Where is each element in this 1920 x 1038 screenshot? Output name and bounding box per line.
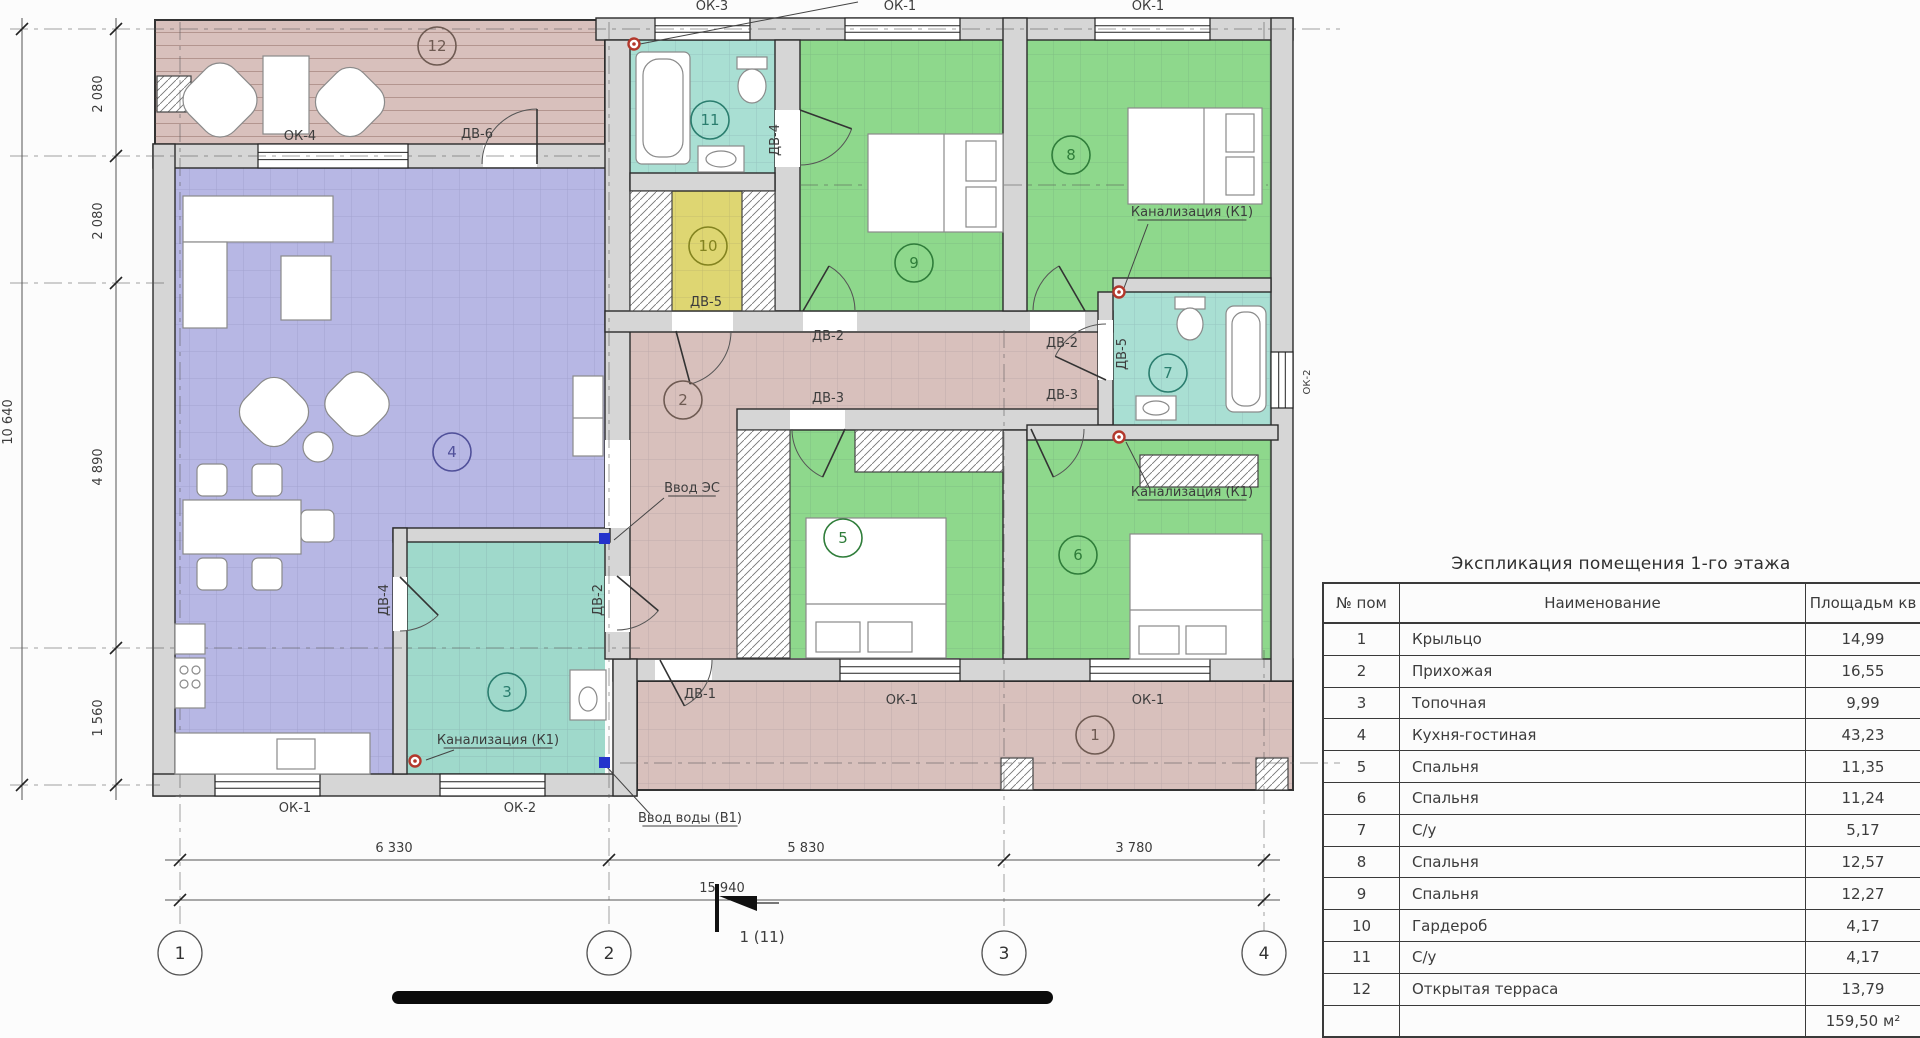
svg-text:12: 12 xyxy=(427,37,446,55)
svg-text:5: 5 xyxy=(838,529,848,547)
cell-room-area: 14,99 xyxy=(1806,624,1920,655)
svg-text:Ввод ЭС: Ввод ЭС xyxy=(664,481,720,496)
cell-room-area: 16,55 xyxy=(1806,656,1920,687)
svg-text:Канализация (К1): Канализация (К1) xyxy=(1131,485,1253,500)
svg-text:11: 11 xyxy=(700,111,719,129)
page: 123456789101112ОК-3ОК-1ОК-1ОК-4ДВ-6ДВ-4К… xyxy=(0,0,1920,1020)
svg-text:Канализация (К1): Канализация (К1) xyxy=(1131,205,1253,220)
svg-text:9: 9 xyxy=(909,254,919,272)
svg-text:ДВ-4: ДВ-4 xyxy=(377,584,392,616)
svg-text:3: 3 xyxy=(999,944,1010,964)
svg-text:ОК-2: ОК-2 xyxy=(504,801,536,816)
cell-room-name: Спальня xyxy=(1400,783,1806,814)
svg-text:2: 2 xyxy=(678,391,688,409)
svg-text:ДВ-1: ДВ-1 xyxy=(684,687,716,702)
cell-room-number: 9 xyxy=(1324,878,1400,909)
explication-row: 11С/у4,17 xyxy=(1324,942,1920,974)
cell-room-area: 12,57 xyxy=(1806,847,1920,878)
cell-room-number: 2 xyxy=(1324,656,1400,687)
cell-room-area: 11,24 xyxy=(1806,783,1920,814)
cell-total-area: 159,50 м² xyxy=(1806,1006,1920,1037)
svg-text:ДВ-6: ДВ-6 xyxy=(461,127,493,142)
explication-total-row: 159,50 м² xyxy=(1324,1006,1920,1037)
explication-table: № пом Наименование Площадьм кв 1Крыльцо1… xyxy=(1322,582,1920,1038)
svg-text:ДВ-2: ДВ-2 xyxy=(812,329,844,344)
cell-room-area: 11,35 xyxy=(1806,751,1920,782)
explication-row: 7С/у5,17 xyxy=(1324,815,1920,847)
svg-text:ДВ-2: ДВ-2 xyxy=(1046,336,1078,351)
cell-room-number: 1 xyxy=(1324,624,1400,655)
svg-text:1 (11): 1 (11) xyxy=(739,928,784,946)
cell-empty xyxy=(1324,1006,1400,1037)
cell-room-name: Прихожая xyxy=(1400,656,1806,687)
explication-panel: Экспликация помещения 1-го этажа № пом Н… xyxy=(1322,554,1920,1038)
svg-text:7: 7 xyxy=(1163,364,1173,382)
svg-text:ДВ-3: ДВ-3 xyxy=(1046,388,1078,403)
explication-row: 3Топочная9,99 xyxy=(1324,688,1920,720)
cell-room-name: Гардероб xyxy=(1400,910,1806,941)
svg-text:3 780: 3 780 xyxy=(1115,841,1152,856)
svg-text:Канализация (К1): Канализация (К1) xyxy=(437,733,559,748)
explication-title: Экспликация помещения 1-го этажа xyxy=(1322,554,1920,582)
svg-text:6: 6 xyxy=(1073,546,1083,564)
cell-room-name: Топочная xyxy=(1400,688,1806,719)
cell-room-number: 8 xyxy=(1324,847,1400,878)
cell-room-number: 11 xyxy=(1324,942,1400,973)
cell-room-area: 5,17 xyxy=(1806,815,1920,846)
svg-text:ДВ-2: ДВ-2 xyxy=(591,584,606,616)
svg-text:ДВ-5: ДВ-5 xyxy=(690,295,722,310)
svg-text:ОК-1: ОК-1 xyxy=(1132,693,1164,708)
svg-text:ОК-1: ОК-1 xyxy=(1132,0,1164,14)
svg-text:1: 1 xyxy=(1090,726,1100,744)
cell-room-number: 4 xyxy=(1324,719,1400,750)
cell-room-name: Открытая терраса xyxy=(1400,974,1806,1005)
svg-text:10: 10 xyxy=(698,237,717,255)
svg-text:2: 2 xyxy=(604,944,615,964)
cell-room-number: 7 xyxy=(1324,815,1400,846)
header-room-number: № пом xyxy=(1324,584,1400,622)
cell-room-name: Крыльцо xyxy=(1400,624,1806,655)
svg-text:1 560: 1 560 xyxy=(91,699,106,736)
svg-text:15 940: 15 940 xyxy=(699,881,745,896)
cell-room-name: Кухня-гостиная xyxy=(1400,719,1806,750)
cell-room-area: 9,99 xyxy=(1806,688,1920,719)
cell-room-area: 13,79 xyxy=(1806,974,1920,1005)
svg-text:ОК-1: ОК-1 xyxy=(279,801,311,816)
svg-text:5 830: 5 830 xyxy=(787,841,824,856)
explication-row: 5Спальня11,35 xyxy=(1324,751,1920,783)
explication-row: 12Открытая терраса13,79 xyxy=(1324,974,1920,1006)
svg-text:4: 4 xyxy=(447,443,457,461)
cell-room-name: С/у xyxy=(1400,815,1806,846)
svg-text:10 640: 10 640 xyxy=(1,399,16,445)
cell-room-area: 12,27 xyxy=(1806,878,1920,909)
svg-text:2 080: 2 080 xyxy=(91,202,106,239)
explication-row: 8Спальня12,57 xyxy=(1324,847,1920,879)
cell-room-number: 12 xyxy=(1324,974,1400,1005)
explication-row: 6Спальня11,24 xyxy=(1324,783,1920,815)
cell-room-number: 10 xyxy=(1324,910,1400,941)
svg-text:1: 1 xyxy=(175,944,186,964)
cell-room-name: Спальня xyxy=(1400,878,1806,909)
svg-text:8: 8 xyxy=(1066,146,1076,164)
svg-text:2 080: 2 080 xyxy=(91,75,106,112)
cell-room-name: Спальня xyxy=(1400,751,1806,782)
explication-row: 4Кухня-гостиная43,23 xyxy=(1324,719,1920,751)
svg-text:ОК-1: ОК-1 xyxy=(886,693,918,708)
explication-row: 9Спальня12,27 xyxy=(1324,878,1920,910)
svg-text:4 890: 4 890 xyxy=(91,448,106,485)
svg-text:ДВ-5: ДВ-5 xyxy=(1115,338,1130,370)
cell-room-area: 4,17 xyxy=(1806,942,1920,973)
header-room-name: Наименование xyxy=(1400,584,1806,622)
svg-text:6 330: 6 330 xyxy=(375,841,412,856)
explication-header-row: № пом Наименование Площадьм кв xyxy=(1324,584,1920,624)
svg-text:Ввод воды (В1): Ввод воды (В1) xyxy=(638,811,742,826)
svg-text:4: 4 xyxy=(1259,944,1270,964)
explication-rows: 1Крыльцо14,992Прихожая16,553Топочная9,99… xyxy=(1324,624,1920,1036)
explication-row: 2Прихожая16,55 xyxy=(1324,656,1920,688)
explication-row: 1Крыльцо14,99 xyxy=(1324,624,1920,656)
cell-room-name: С/у xyxy=(1400,942,1806,973)
svg-text:ОК-4: ОК-4 xyxy=(284,129,316,144)
svg-text:ОК-3: ОК-3 xyxy=(696,0,728,14)
explication-row: 10Гардероб4,17 xyxy=(1324,910,1920,942)
video-scrubber[interactable] xyxy=(392,991,1053,1004)
cell-room-name: Спальня xyxy=(1400,847,1806,878)
cell-room-number: 3 xyxy=(1324,688,1400,719)
svg-text:ОК-1: ОК-1 xyxy=(884,0,916,14)
cell-empty xyxy=(1400,1006,1806,1037)
cell-room-number: 5 xyxy=(1324,751,1400,782)
cell-room-number: 6 xyxy=(1324,783,1400,814)
cell-room-area: 4,17 xyxy=(1806,910,1920,941)
svg-text:ОК-2: ОК-2 xyxy=(1302,370,1313,395)
svg-text:3: 3 xyxy=(502,683,512,701)
svg-text:ДВ-4: ДВ-4 xyxy=(768,124,783,156)
header-room-area: Площадьм кв xyxy=(1806,584,1920,622)
svg-text:ДВ-3: ДВ-3 xyxy=(812,391,844,406)
cell-room-area: 43,23 xyxy=(1806,719,1920,750)
